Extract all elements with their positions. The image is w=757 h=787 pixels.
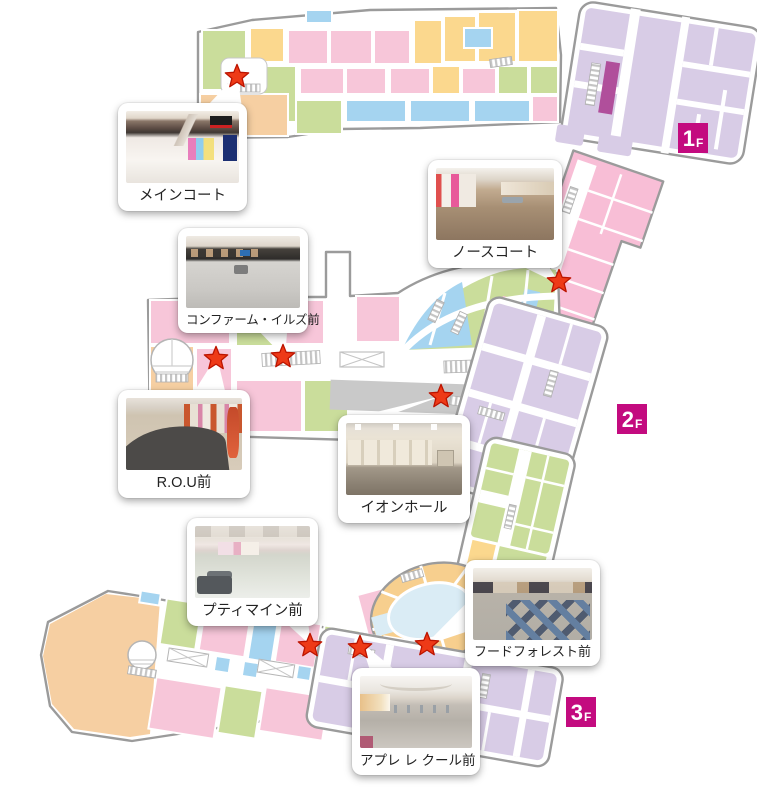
north-court-photo bbox=[436, 168, 554, 240]
star-marker-north-court[interactable] bbox=[546, 268, 572, 294]
callout-label: R.O.U前 bbox=[126, 470, 242, 498]
floor-suffix: F bbox=[696, 137, 703, 149]
callout-label: アプレ レ クール前 bbox=[360, 748, 472, 775]
callout-petit-main[interactable]: プティマイン前 bbox=[187, 518, 318, 626]
star-marker-confirm-ills[interactable] bbox=[270, 343, 296, 369]
callout-label: フードフォレスト前 bbox=[473, 640, 592, 666]
floor-suffix: F bbox=[635, 418, 642, 430]
cart-accent bbox=[234, 265, 248, 274]
bench-accent bbox=[197, 576, 232, 595]
callout-main-court[interactable]: メインコート bbox=[118, 103, 247, 211]
callout-north-court[interactable]: ノースコート bbox=[428, 160, 562, 268]
curtain-accent bbox=[223, 135, 237, 162]
store-sign-accent bbox=[210, 116, 233, 128]
wall-panels-accent bbox=[348, 440, 432, 466]
callout-label: イオンホール bbox=[346, 495, 462, 523]
map-1f-east-block bbox=[560, 0, 757, 165]
skylight-accent bbox=[380, 676, 452, 691]
apres-les-cours-photo bbox=[360, 676, 472, 748]
callout-apres-les-cours[interactable]: アプレ レ クール前 bbox=[352, 668, 480, 775]
floor-suffix: F bbox=[584, 711, 591, 723]
floor-guide: メインコート ノースコート コンファーム・イルズ前 R.O.U前 bbox=[0, 0, 757, 787]
callout-confirm-ills[interactable]: コンファーム・イルズ前 bbox=[178, 228, 308, 333]
storefront-accent bbox=[360, 694, 390, 711]
floor-badge-1f: 1 F bbox=[678, 123, 708, 153]
star-marker-aeon-hall[interactable] bbox=[428, 383, 454, 409]
rou-photo bbox=[126, 398, 242, 470]
star-marker-rou[interactable] bbox=[203, 345, 229, 371]
confirm-ills-photo bbox=[186, 236, 300, 308]
callout-aeon-hall[interactable]: イオンホール bbox=[338, 415, 470, 523]
map-2f-xbox bbox=[340, 352, 384, 367]
display-screen-accent bbox=[188, 138, 214, 160]
storefront-accent bbox=[436, 174, 476, 207]
aeon-hall-photo bbox=[346, 423, 462, 495]
floor-accent bbox=[360, 736, 373, 748]
star-marker-food-forest[interactable] bbox=[414, 631, 440, 657]
food-counters-accent bbox=[473, 582, 592, 594]
star-marker-main-court[interactable] bbox=[224, 63, 250, 89]
door-accent bbox=[437, 450, 454, 467]
star-marker-petit-main[interactable] bbox=[297, 632, 323, 658]
map-1f bbox=[198, 0, 757, 165]
floor-badge-3f: 3 F bbox=[566, 697, 596, 727]
storefront-accent bbox=[218, 542, 259, 555]
floor-number: 3 bbox=[571, 702, 583, 724]
callout-food-forest[interactable]: フードフォレスト前 bbox=[465, 560, 600, 666]
star-marker-apres-les-cours[interactable] bbox=[347, 634, 373, 660]
far-corridor-accent bbox=[501, 182, 554, 195]
pillar-accent bbox=[227, 407, 239, 459]
main-court-photo bbox=[126, 111, 239, 183]
food-forest-photo bbox=[473, 568, 592, 640]
sign-accent bbox=[240, 250, 250, 256]
ceiling-lights-accent bbox=[355, 424, 452, 430]
callout-label: ノースコート bbox=[436, 240, 554, 268]
petit-main-photo bbox=[195, 526, 310, 598]
railing-accent bbox=[394, 705, 459, 713]
floor-badge-2f: 2 F bbox=[617, 404, 647, 434]
carpet-pattern-accent bbox=[506, 600, 589, 640]
callout-label: コンファーム・イルズ前 bbox=[186, 308, 300, 333]
callout-rou[interactable]: R.O.U前 bbox=[118, 390, 250, 498]
floor-number: 2 bbox=[622, 409, 634, 431]
bench-accent bbox=[502, 197, 523, 203]
callout-label: メインコート bbox=[126, 183, 239, 211]
floor-number: 1 bbox=[683, 128, 695, 150]
callout-label: プティマイン前 bbox=[195, 598, 310, 626]
ceiling-beams-accent bbox=[195, 526, 310, 537]
